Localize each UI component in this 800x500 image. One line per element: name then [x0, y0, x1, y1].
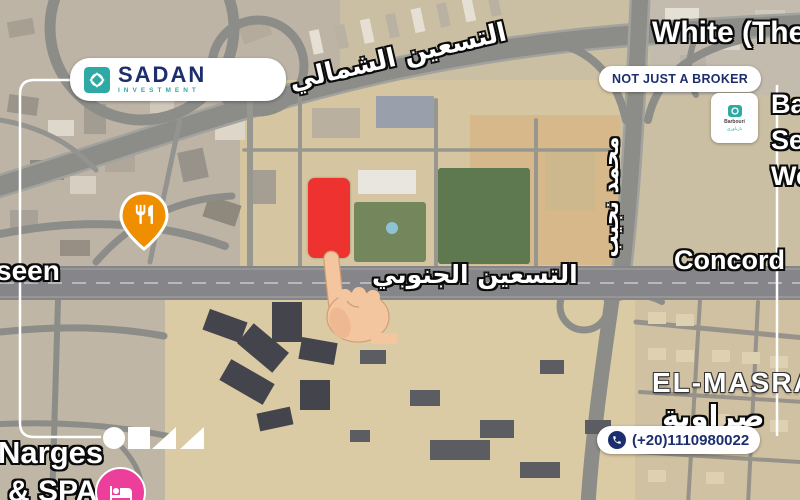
sadan-logo-icon [84, 67, 110, 93]
brand-shapes [100, 422, 210, 454]
pointing-finger-icon [295, 249, 410, 344]
shape-triangle-1 [152, 427, 176, 449]
partner-card: Barbouri بارباوري [711, 93, 758, 143]
phone-number: (+20)1110980022 [632, 432, 749, 449]
shape-circle [103, 427, 125, 449]
poi-label-narges: Narges [0, 437, 103, 468]
logo-title: SADAN [118, 64, 206, 86]
restaurant-pin-icon [116, 190, 172, 252]
partner-name: Barbouri [724, 119, 745, 125]
edge-line-2: Se [771, 122, 800, 158]
district-label-elmasra: EL-MASRA [652, 369, 800, 397]
edge-line-1: Ba [771, 86, 800, 122]
district-label-concord: Concord [674, 247, 785, 274]
edge-clipped-label: Ba Se We [771, 86, 800, 194]
partner-name-arabic: بارباوري [727, 127, 742, 132]
shape-triangle-2 [180, 427, 204, 449]
tagline-badge: NOT JUST A BROKER [599, 66, 761, 92]
highlighted-plot [308, 178, 350, 258]
phone-badge: (+20)1110980022 [597, 426, 760, 454]
tagline-text: NOT JUST A BROKER [612, 72, 748, 86]
phone-icon [608, 431, 626, 449]
street-label-seen-partial: seen [0, 257, 60, 285]
district-label-white: White (The [652, 18, 800, 48]
listing-map-screenshot: SADAN INVESTMENT NOT JUST A BROKER White… [0, 0, 800, 500]
shape-square [128, 427, 150, 449]
street-label-mohamed-naguib: محمد نجيب [601, 122, 623, 272]
edge-line-3: We [771, 158, 800, 194]
poi-label-spa: & SPA [8, 477, 97, 500]
partner-logo-icon [728, 105, 742, 117]
sadan-logo: SADAN INVESTMENT [70, 58, 286, 101]
logo-subtitle: INVESTMENT [118, 88, 206, 95]
